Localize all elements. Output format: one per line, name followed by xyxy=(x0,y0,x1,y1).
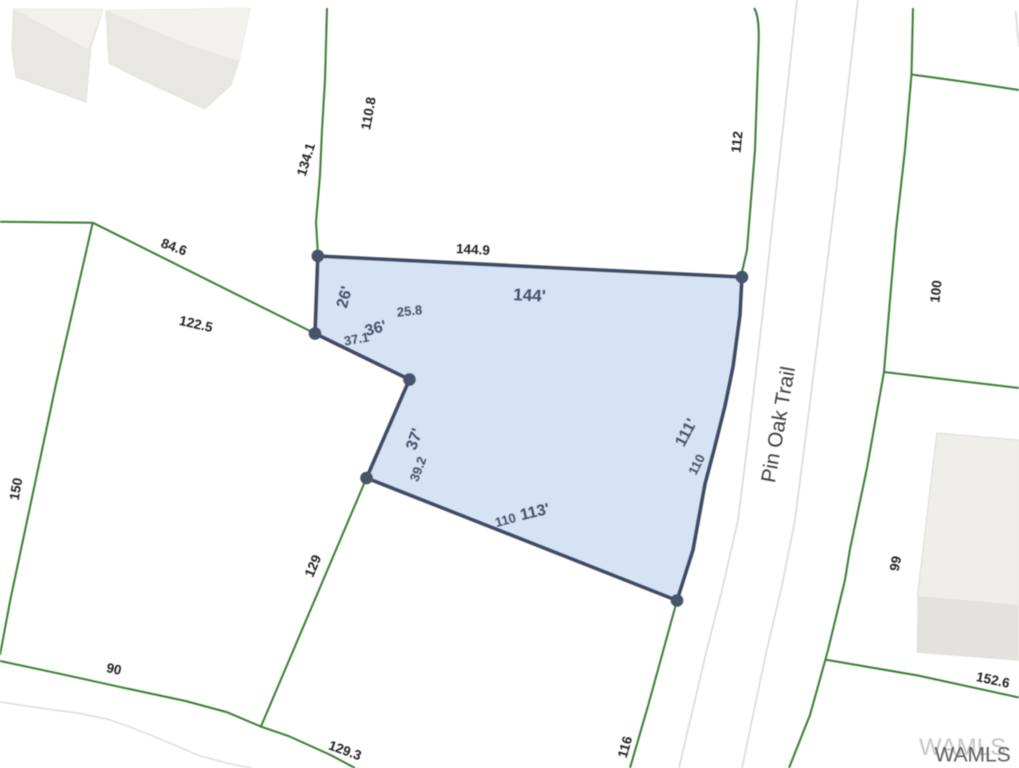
svg-text:144': 144' xyxy=(513,285,546,306)
svg-text:99: 99 xyxy=(887,555,905,573)
svg-text:144.9: 144.9 xyxy=(456,241,491,258)
svg-text:WAMLS: WAMLS xyxy=(935,744,1011,767)
svg-text:100: 100 xyxy=(927,280,944,304)
svg-text:25.8: 25.8 xyxy=(396,302,423,320)
svg-text:90: 90 xyxy=(105,660,123,678)
svg-text:112: 112 xyxy=(728,130,745,153)
